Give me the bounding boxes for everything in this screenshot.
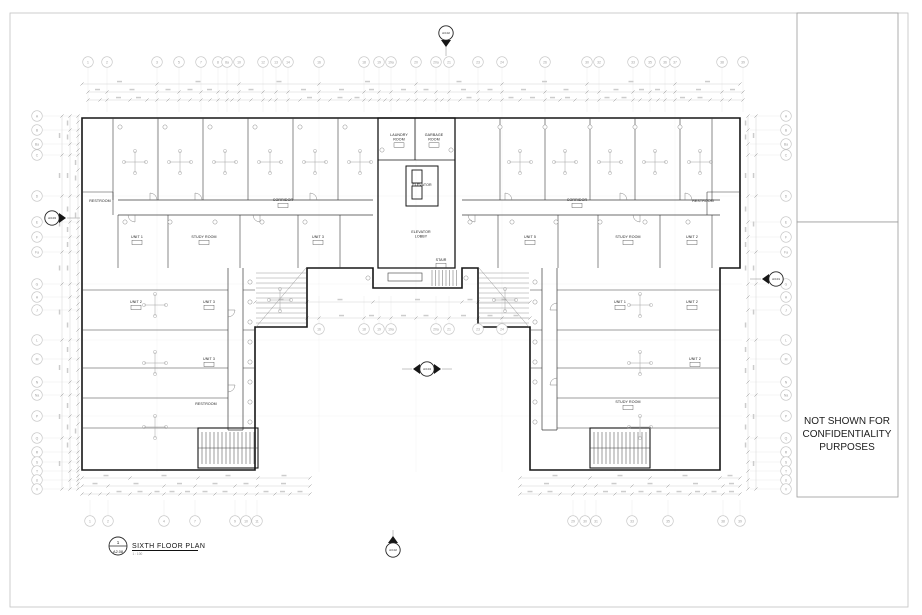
svg-text:CORRIDOR: CORRIDOR — [567, 198, 588, 202]
svg-text:16: 16 — [317, 60, 321, 64]
grid-bubble: 38 — [717, 57, 728, 68]
svg-text:UNIT 3: UNIT 3 — [203, 300, 215, 304]
svg-text:30: 30 — [585, 60, 589, 64]
drawing-scale: 1 : 100 — [133, 552, 143, 556]
keynote-marker-icon — [163, 125, 167, 129]
grid-bubble: 13 — [271, 57, 282, 68]
svg-text:8: 8 — [217, 60, 219, 64]
grid-bubble: Fa — [32, 247, 43, 258]
grid-bubble: D — [32, 191, 43, 202]
svg-text:UNIT 3: UNIT 3 — [312, 235, 324, 239]
grid-bubble: 9 — [230, 516, 241, 527]
svg-text:A3.01: A3.01 — [772, 277, 780, 281]
confidentiality-note-line2: CONFIDENTIALITY — [803, 429, 892, 440]
keynote-marker-icon — [118, 125, 122, 129]
grid-bubble: 3 — [152, 57, 163, 68]
grid-bubble: V — [781, 484, 792, 495]
grid-bubble: 35 — [663, 516, 674, 527]
keynote-marker-icon — [449, 148, 453, 152]
svg-text:19a: 19a — [388, 60, 394, 64]
svg-text:29: 29 — [571, 519, 575, 523]
grid-bubble: 12 — [258, 57, 269, 68]
svg-text:M: M — [36, 357, 39, 361]
keynote-marker-icon — [678, 125, 682, 129]
svg-text:4: 4 — [163, 519, 165, 523]
grid-bubble: 14 — [283, 57, 294, 68]
keynote-marker-icon — [248, 300, 252, 304]
svg-text:Q: Q — [36, 436, 39, 440]
panel-lower-box — [797, 222, 898, 497]
right-panel: NOT SHOWN FOR CONFIDENTIALITY PURPOSES — [797, 13, 898, 497]
grid-bubble: 7 — [196, 57, 207, 68]
svg-text:7: 7 — [194, 519, 196, 523]
svg-text:5: 5 — [178, 60, 180, 64]
svg-text:M: M — [785, 357, 788, 361]
grid-bubble: F — [781, 232, 792, 243]
svg-text:38: 38 — [721, 519, 725, 523]
svg-text:19: 19 — [377, 327, 381, 331]
room-label: ELEVATOR — [412, 183, 432, 187]
keynote-marker-icon — [588, 125, 592, 129]
svg-text:10: 10 — [244, 519, 248, 523]
svg-text:STUDY ROOM: STUDY ROOM — [191, 235, 216, 239]
svg-text:7: 7 — [200, 60, 202, 64]
grid-bubble: 19a — [386, 57, 397, 68]
sheet-number: A2.08 — [113, 550, 123, 554]
grid-bubble: 10 — [241, 516, 252, 527]
grid-bubble: L — [32, 335, 43, 346]
grid-bubble: 39 — [738, 57, 749, 68]
grid-bubble: 23 — [473, 324, 484, 335]
svg-text:Q: Q — [785, 436, 788, 440]
svg-text:13: 13 — [274, 60, 278, 64]
svg-text:18: 18 — [362, 60, 366, 64]
svg-text:12: 12 — [261, 60, 265, 64]
svg-text:38: 38 — [720, 60, 724, 64]
svg-text:Na: Na — [35, 393, 39, 397]
grid-bubble: 2 — [103, 516, 114, 527]
grid-bubble: 38 — [718, 516, 729, 527]
grid-bubble: 36 — [660, 57, 671, 68]
svg-text:Fa: Fa — [35, 250, 39, 254]
room-label: RESTROOM — [195, 402, 217, 406]
svg-text:33: 33 — [631, 60, 635, 64]
svg-text:LOBBY: LOBBY — [415, 235, 428, 239]
svg-text:UNIT 2: UNIT 2 — [686, 235, 698, 239]
keynote-marker-icon — [123, 220, 127, 224]
grid-bubble: 30 — [582, 57, 593, 68]
grid-bubble: N — [781, 377, 792, 388]
keynote-marker-icon — [598, 220, 602, 224]
grid-bubble: 16 — [314, 57, 325, 68]
keynote-marker-icon — [208, 125, 212, 129]
keynote-marker-icon — [468, 220, 472, 224]
keynote-marker-icon — [686, 220, 690, 224]
keynote-marker-icon — [303, 220, 307, 224]
room-label: RESTROOM — [692, 199, 714, 203]
floor-plan-sheet: 1235788a1012131416181919a2020a2123242630… — [0, 0, 922, 615]
grid-bubble: N — [32, 377, 43, 388]
svg-text:T: T — [785, 469, 787, 473]
svg-text:Na: Na — [784, 393, 788, 397]
keynote-marker-icon — [510, 220, 514, 224]
svg-text:J: J — [785, 308, 787, 312]
grid-bubble: 18 — [359, 57, 370, 68]
grid-bubble: 16 — [314, 324, 325, 335]
svg-text:A3.02: A3.02 — [389, 548, 397, 552]
grid-bubble: 33 — [628, 57, 639, 68]
grid-bubble: R — [781, 447, 792, 458]
svg-text:23: 23 — [476, 327, 480, 331]
grid-bubble: Q — [781, 433, 792, 444]
grid-bubble: 18 — [359, 324, 370, 335]
svg-text:35: 35 — [666, 519, 670, 523]
svg-text:F: F — [785, 235, 787, 239]
svg-text:24: 24 — [500, 60, 504, 64]
svg-text:L: L — [36, 338, 38, 342]
keynote-marker-icon — [298, 125, 302, 129]
svg-text:UNIT 1: UNIT 1 — [131, 235, 143, 239]
grid-bubble: 2 — [102, 57, 113, 68]
svg-text:30: 30 — [583, 519, 587, 523]
svg-text:19: 19 — [377, 60, 381, 64]
grid-bubble: 26 — [540, 57, 551, 68]
svg-text:LAUNDRY: LAUNDRY — [390, 133, 408, 137]
svg-text:21: 21 — [447, 60, 451, 64]
grid-bubble: Fa — [781, 247, 792, 258]
svg-text:35: 35 — [648, 60, 652, 64]
svg-text:RESTROOM: RESTROOM — [195, 402, 217, 406]
svg-text:F: F — [36, 235, 38, 239]
svg-text:Ba: Ba — [35, 142, 39, 146]
grid-bubble: 20 — [411, 57, 422, 68]
grid-bubble: 19 — [374, 324, 385, 335]
drawing-title: SIXTH FLOOR PLAN — [132, 543, 205, 550]
room-label: RESTROOM — [89, 199, 111, 203]
svg-text:21: 21 — [447, 327, 451, 331]
keynote-marker-icon — [248, 400, 252, 404]
grid-bubble: E — [781, 217, 792, 228]
svg-text:10: 10 — [237, 60, 241, 64]
svg-text:1: 1 — [89, 519, 91, 523]
grid-bubble: F — [32, 232, 43, 243]
grid-bubble: P — [32, 411, 43, 422]
svg-text:2: 2 — [106, 60, 108, 64]
grid-bubble: Ba — [781, 139, 792, 150]
grid-bubble: J — [781, 305, 792, 316]
keynote-marker-icon — [213, 220, 217, 224]
grid-bubble: 19 — [374, 57, 385, 68]
keynote-marker-icon — [554, 220, 558, 224]
svg-text:STUDY ROOM: STUDY ROOM — [615, 235, 640, 239]
keynote-marker-icon — [248, 380, 252, 384]
svg-text:3: 3 — [156, 60, 158, 64]
grid-bubble: Na — [781, 390, 792, 401]
keynote-marker-icon — [260, 220, 264, 224]
svg-text:16: 16 — [317, 327, 321, 331]
keynote-marker-icon — [248, 320, 252, 324]
keynote-marker-icon — [248, 420, 252, 424]
grid-bubble: A — [32, 111, 43, 122]
keynote-marker-icon — [498, 125, 502, 129]
grid-bubble: 19a — [386, 324, 397, 335]
drawing-sheet: 1235788a1012131416181919a2020a2123242630… — [0, 0, 922, 615]
svg-text:STAIR: STAIR — [436, 258, 447, 262]
grid-bubble: M — [32, 354, 43, 365]
grid-bubble: B — [32, 125, 43, 136]
svg-text:23: 23 — [476, 60, 480, 64]
svg-text:CORRIDOR: CORRIDOR — [273, 198, 294, 202]
svg-text:8a: 8a — [225, 60, 229, 64]
keynote-marker-icon — [543, 125, 547, 129]
keynote-marker-icon — [248, 340, 252, 344]
grid-bubble: C — [32, 150, 43, 161]
svg-text:33: 33 — [630, 519, 634, 523]
grid-bubble: 5 — [174, 57, 185, 68]
svg-text:ROOM: ROOM — [428, 138, 440, 142]
grid-bubble: M — [781, 354, 792, 365]
grid-bubble: 1 — [83, 57, 94, 68]
grid-bubble: 29 — [568, 516, 579, 527]
svg-text:9: 9 — [234, 519, 236, 523]
grid-bubble: 21 — [444, 57, 455, 68]
keynote-marker-icon — [533, 400, 537, 404]
keynote-marker-icon — [168, 220, 172, 224]
grid-bubble: Q — [32, 433, 43, 444]
grid-bubble: Ba — [32, 139, 43, 150]
svg-text:T: T — [36, 469, 38, 473]
panel-upper-box — [797, 13, 898, 222]
grid-bubble: C — [781, 150, 792, 161]
svg-text:31: 31 — [594, 519, 598, 523]
keynote-marker-icon — [253, 125, 257, 129]
grid-bubble: 39 — [735, 516, 746, 527]
grid-bubble: 21 — [444, 324, 455, 335]
keynote-marker-icon — [464, 276, 468, 280]
grid-bubble: 37 — [670, 57, 681, 68]
svg-text:J: J — [36, 308, 38, 312]
svg-text:ELEVATOR: ELEVATOR — [411, 230, 431, 234]
svg-text:UNIT 2: UNIT 2 — [689, 357, 701, 361]
keynote-marker-icon — [533, 280, 537, 284]
svg-text:UNIT 3: UNIT 3 — [203, 357, 215, 361]
grid-bubble: 8a — [222, 57, 233, 68]
grid-bubble: 23 — [473, 57, 484, 68]
grid-bubble: A — [781, 111, 792, 122]
keynote-marker-icon — [380, 148, 384, 152]
grid-bubble: D — [781, 191, 792, 202]
grid-bubble: H — [32, 292, 43, 303]
svg-text:26: 26 — [543, 60, 547, 64]
grid-bubble: 24 — [497, 324, 508, 335]
grid-bubble: 4 — [159, 516, 170, 527]
svg-text:A3.02: A3.02 — [442, 31, 450, 35]
grid-bubble: 11 — [252, 516, 263, 527]
keynote-marker-icon — [533, 360, 537, 364]
svg-text:A3.04: A3.04 — [423, 367, 431, 371]
svg-text:UNIT 2: UNIT 2 — [130, 300, 142, 304]
svg-text:STUDY ROOM: STUDY ROOM — [615, 400, 640, 404]
svg-text:20a: 20a — [433, 327, 439, 331]
svg-text:UNIT 1: UNIT 1 — [614, 300, 626, 304]
keynote-marker-icon — [533, 380, 537, 384]
grid-bubble: G — [32, 279, 43, 290]
grid-bubble: H — [781, 292, 792, 303]
svg-text:36: 36 — [663, 60, 667, 64]
svg-text:14: 14 — [286, 60, 290, 64]
grid-bubble: 10 — [234, 57, 245, 68]
svg-text:RESTROOM: RESTROOM — [692, 199, 714, 203]
svg-text:18: 18 — [362, 327, 366, 331]
grid-bubble: 24 — [497, 57, 508, 68]
keynote-marker-icon — [366, 276, 370, 280]
grid-bubble: 32 — [594, 57, 605, 68]
svg-text:A3.03: A3.03 — [48, 216, 56, 220]
keynote-marker-icon — [633, 125, 637, 129]
grid-bubble: V — [32, 484, 43, 495]
svg-text:24: 24 — [500, 327, 504, 331]
svg-text:32: 32 — [597, 60, 601, 64]
svg-text:UNIT 5: UNIT 5 — [524, 235, 536, 239]
svg-text:39: 39 — [741, 60, 745, 64]
grid-bubble: 7 — [190, 516, 201, 527]
svg-text:Fa: Fa — [784, 250, 788, 254]
grid-bubble: 30 — [580, 516, 591, 527]
grid-bubble: J — [32, 305, 43, 316]
grid-bubble: B — [781, 125, 792, 136]
grid-bubble: 33 — [627, 516, 638, 527]
grid-bubble: 20a — [431, 324, 442, 335]
svg-text:37: 37 — [673, 60, 677, 64]
svg-text:RESTROOM: RESTROOM — [89, 199, 111, 203]
svg-text:20: 20 — [414, 60, 418, 64]
svg-text:39: 39 — [738, 519, 742, 523]
grid-bubble: R — [32, 447, 43, 458]
svg-text:1: 1 — [87, 60, 89, 64]
svg-text:2: 2 — [107, 519, 109, 523]
grid-bubble: 1 — [85, 516, 96, 527]
svg-text:G: G — [785, 282, 788, 286]
keynote-marker-icon — [533, 300, 537, 304]
svg-text:19a: 19a — [388, 327, 394, 331]
grid-bubble: Na — [32, 390, 43, 401]
grid-bubble: P — [781, 411, 792, 422]
grid-bubble: 35 — [645, 57, 656, 68]
svg-text:11: 11 — [255, 519, 259, 523]
grid-bubble: 31 — [591, 516, 602, 527]
confidentiality-note-line3: PURPOSES — [819, 442, 875, 453]
keynote-marker-icon — [533, 320, 537, 324]
keynote-marker-icon — [343, 125, 347, 129]
keynote-marker-icon — [533, 340, 537, 344]
keynote-marker-icon — [248, 280, 252, 284]
svg-text:ROOM: ROOM — [393, 138, 405, 142]
keynote-marker-icon — [248, 360, 252, 364]
svg-text:G: G — [36, 282, 39, 286]
svg-text:UNIT 2: UNIT 2 — [686, 300, 698, 304]
keynote-marker-icon — [533, 420, 537, 424]
grid-bubble: 20a — [431, 57, 442, 68]
svg-text:L: L — [785, 338, 787, 342]
svg-text:GARBAGE: GARBAGE — [425, 133, 444, 137]
svg-text:Ba: Ba — [784, 142, 788, 146]
grid-bubble: E — [32, 217, 43, 228]
svg-text:20a: 20a — [433, 60, 439, 64]
svg-text:ELEVATOR: ELEVATOR — [412, 183, 432, 187]
confidentiality-note-line1: NOT SHOWN FOR — [804, 416, 890, 427]
detail-number: 1 — [117, 540, 120, 545]
keynote-marker-icon — [643, 220, 647, 224]
grid-bubble: L — [781, 335, 792, 346]
